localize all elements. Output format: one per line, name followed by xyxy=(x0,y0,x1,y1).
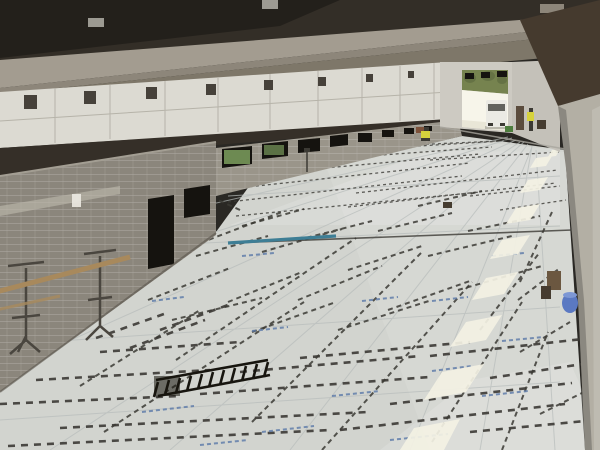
block-room-doorway xyxy=(148,195,174,269)
white-van xyxy=(485,100,509,129)
block-room-window xyxy=(184,185,210,218)
light-fixture-2 xyxy=(262,0,278,9)
blue-barrel-top xyxy=(563,292,577,298)
equipment-box-2 xyxy=(541,286,551,299)
light-fixture-1 xyxy=(88,18,104,27)
dark-cart xyxy=(537,120,546,129)
construction-site-photo xyxy=(0,0,600,450)
green-machine xyxy=(505,126,513,132)
survey-pole-top xyxy=(304,148,310,152)
floor-debris-box xyxy=(443,202,452,208)
green-board-1 xyxy=(224,150,250,164)
green-board-2 xyxy=(264,145,284,155)
ladder-dark-end xyxy=(154,376,180,396)
far-right-door xyxy=(516,106,524,130)
photo-canvas xyxy=(0,0,600,450)
taped-paper xyxy=(72,194,81,207)
